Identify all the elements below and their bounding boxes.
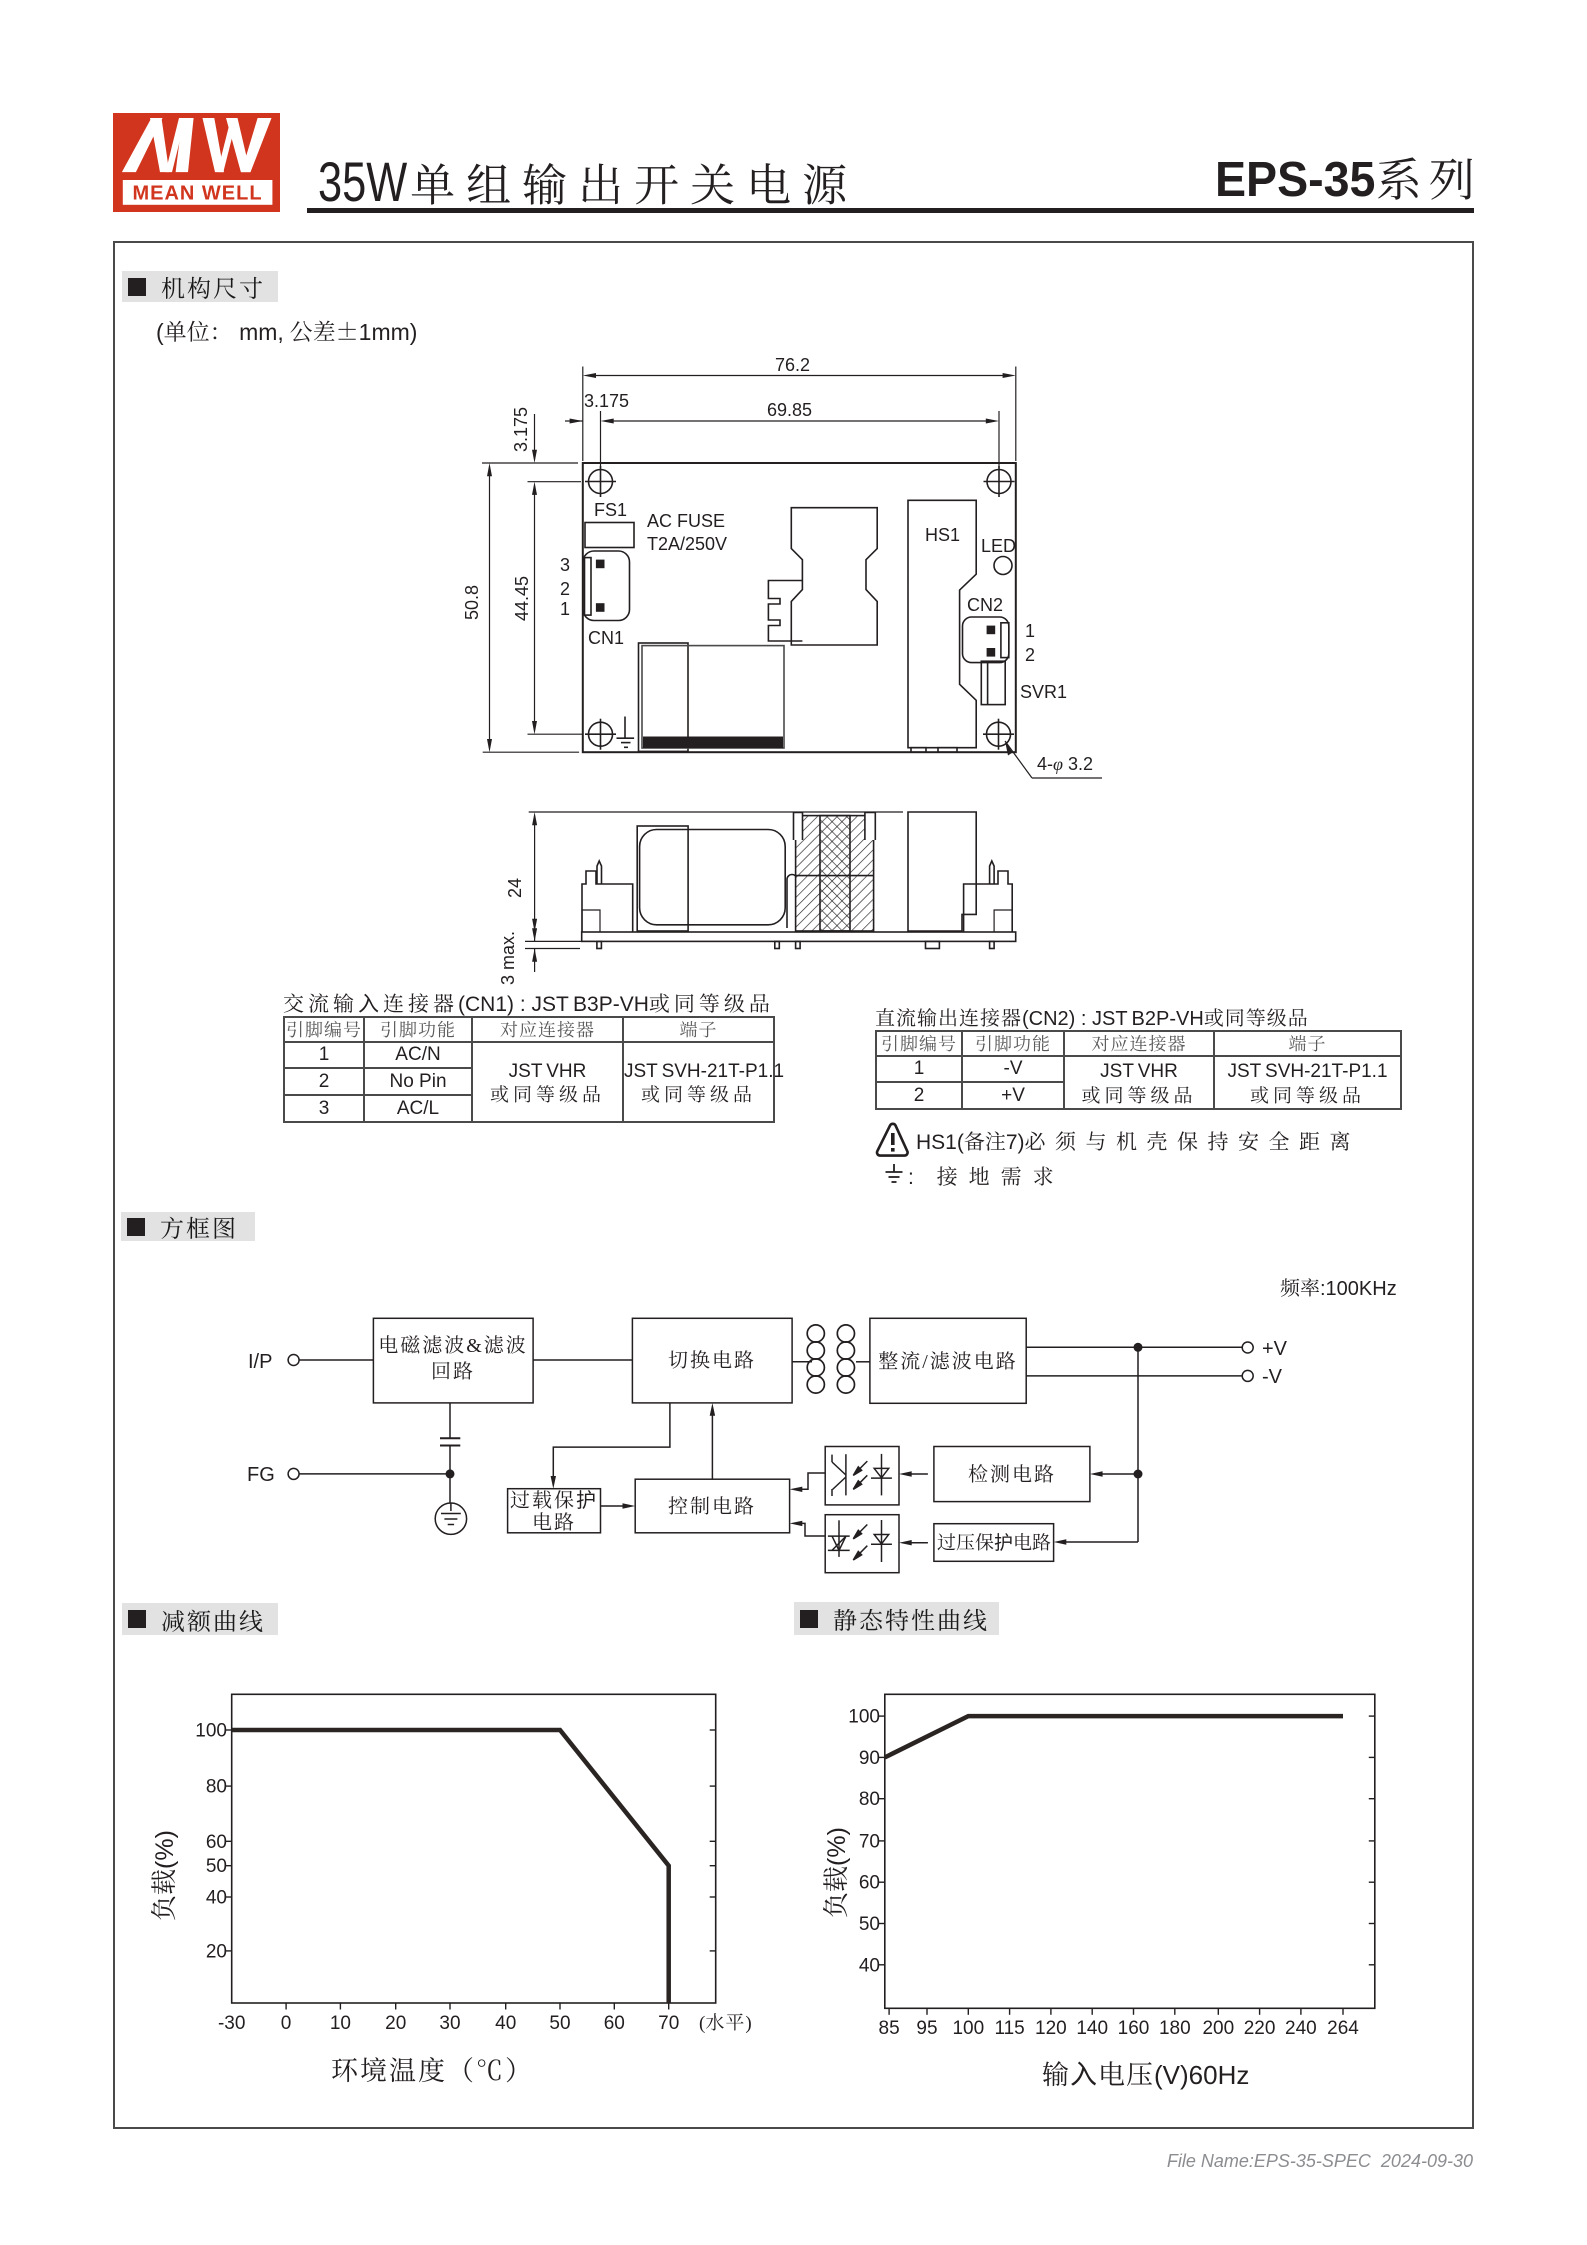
svg-text:40: 40: [206, 1888, 227, 1909]
svg-text:60: 60: [604, 2013, 625, 2034]
svg-text:180: 180: [1159, 2018, 1191, 2039]
svg-text:80: 80: [859, 1789, 880, 1810]
svg-text:50: 50: [859, 1914, 880, 1935]
svg-text:115: 115: [994, 2018, 1024, 2039]
svg-text:140: 140: [1076, 2018, 1108, 2039]
svg-text:整流/滤波电路: 整流/滤波电路: [878, 1345, 1018, 1374]
svg-text:220: 220: [1244, 2018, 1276, 2039]
svg-text:电路: 电路: [532, 1506, 576, 1535]
svg-text:50: 50: [206, 1856, 227, 1877]
svg-text:1: 1: [560, 599, 570, 619]
svg-text:70: 70: [859, 1831, 880, 1852]
svg-text:LED: LED: [981, 536, 1016, 556]
svg-text:CN2: CN2: [967, 595, 1003, 615]
svg-text:输入电压(V)60Hz: 输入电压(V)60Hz: [1042, 2053, 1249, 2092]
svg-text:I/P: I/P: [248, 1351, 272, 1373]
svg-text:FS1: FS1: [594, 500, 627, 520]
svg-text:30: 30: [439, 2013, 460, 2034]
svg-text:40: 40: [495, 2013, 516, 2034]
svg-text:3.175: 3.175: [511, 407, 531, 452]
svg-text:回路: 回路: [431, 1355, 475, 1384]
svg-text:24: 24: [505, 878, 525, 898]
svg-text:HS1: HS1: [925, 525, 960, 545]
svg-text:CN1: CN1: [588, 628, 624, 648]
svg-text:控制电路: 控制电路: [668, 1490, 756, 1519]
svg-text:264: 264: [1327, 2018, 1359, 2039]
svg-text:+V: +V: [1262, 1338, 1288, 1360]
svg-text:60: 60: [859, 1873, 880, 1894]
svg-text:2: 2: [560, 579, 570, 599]
svg-text:70: 70: [658, 2013, 679, 2034]
svg-text:60: 60: [206, 1832, 227, 1853]
svg-text:SVR1: SVR1: [1020, 682, 1067, 702]
svg-text:(水平): (水平): [699, 2008, 752, 2035]
svg-text:T2A/250V: T2A/250V: [647, 534, 727, 554]
svg-text:过压保护电路: 过压保护电路: [937, 1528, 1051, 1555]
svg-text:3: 3: [560, 555, 570, 575]
svg-text:负载(%): 负载(%): [144, 1830, 181, 1921]
svg-text:100: 100: [195, 1721, 227, 1742]
svg-text:160: 160: [1118, 2018, 1150, 2039]
svg-text:50.8: 50.8: [462, 585, 482, 620]
svg-text:10: 10: [330, 2013, 351, 2034]
svg-text:4-φ 3.2: 4-φ 3.2: [1037, 754, 1093, 774]
svg-text:环境温度（℃）: 环境温度（℃）: [331, 2049, 534, 2088]
svg-text:-30: -30: [218, 2013, 245, 2034]
svg-text:44.45: 44.45: [512, 576, 532, 621]
svg-text:FG: FG: [247, 1464, 275, 1486]
svg-text:0: 0: [281, 2013, 292, 2034]
svg-text:切换电路: 切换电路: [668, 1344, 756, 1373]
svg-text:120: 120: [1035, 2018, 1067, 2039]
svg-text:20: 20: [385, 2013, 406, 2034]
svg-text:3.175: 3.175: [584, 391, 629, 411]
svg-text:MEAN WELL: MEAN WELL: [132, 183, 262, 205]
svg-text:240: 240: [1285, 2018, 1317, 2039]
svg-text:3 max.: 3 max.: [498, 931, 518, 985]
svg-text:1: 1: [1025, 621, 1035, 641]
svg-text:AC FUSE: AC FUSE: [647, 511, 725, 531]
svg-text:100: 100: [848, 1707, 880, 1728]
svg-text:69.85: 69.85: [767, 400, 812, 420]
svg-text:76.2: 76.2: [775, 355, 810, 375]
svg-text:-V: -V: [1262, 1366, 1283, 1388]
svg-text:2: 2: [1025, 645, 1035, 665]
svg-text:40: 40: [859, 1955, 880, 1976]
svg-text:90: 90: [859, 1748, 880, 1769]
svg-text:20: 20: [206, 1941, 227, 1962]
svg-text:电磁滤波&滤波: 电磁滤波&滤波: [378, 1329, 528, 1358]
svg-text:负载(%): 负载(%): [816, 1827, 853, 1918]
svg-text:80: 80: [206, 1777, 227, 1798]
svg-text:检测电路: 检测电路: [968, 1458, 1056, 1487]
svg-text:85: 85: [879, 2018, 900, 2039]
svg-text:200: 200: [1202, 2018, 1234, 2039]
svg-text:100: 100: [952, 2018, 984, 2039]
svg-text:50: 50: [549, 2013, 570, 2034]
svg-text:95: 95: [916, 2018, 937, 2039]
